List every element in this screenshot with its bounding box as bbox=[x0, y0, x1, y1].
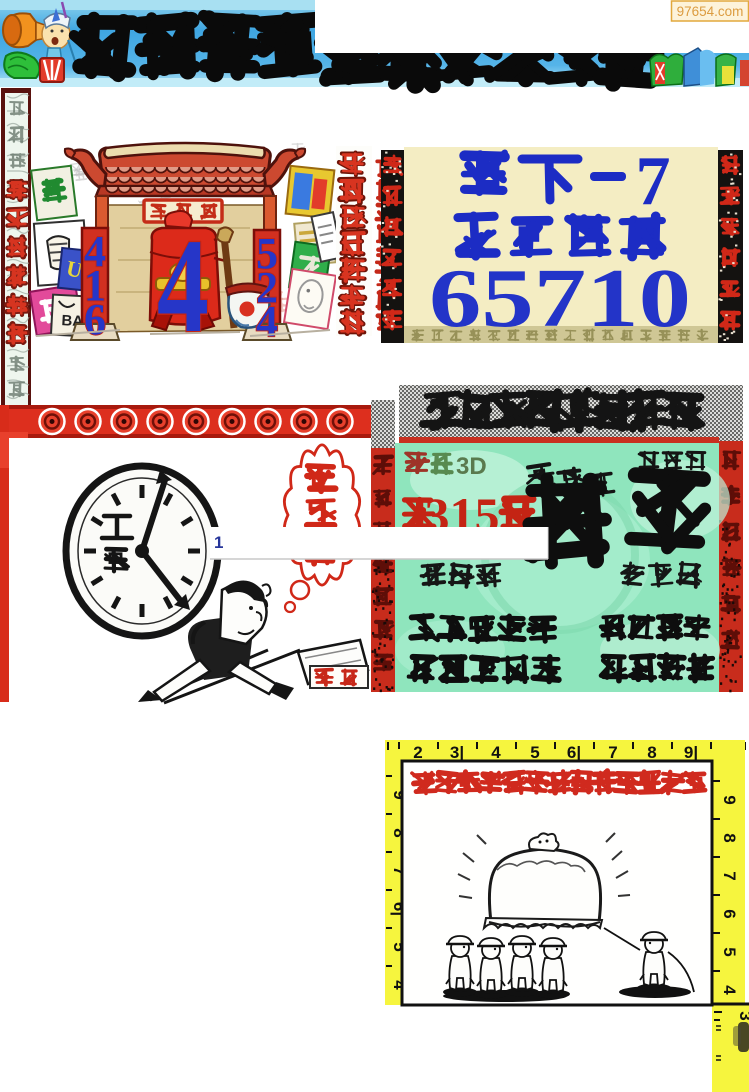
svg-text:6: 6 bbox=[720, 909, 739, 918]
svg-text:8: 8 bbox=[647, 743, 656, 762]
svg-text:4: 4 bbox=[157, 212, 209, 361]
svg-text:8: 8 bbox=[720, 833, 739, 842]
svg-text:9|: 9| bbox=[684, 743, 698, 762]
svg-text:6: 6 bbox=[84, 295, 106, 344]
svg-text:7: 7 bbox=[636, 143, 671, 220]
svg-text:3: 3 bbox=[736, 1011, 749, 1020]
svg-text:2: 2 bbox=[413, 743, 422, 762]
svg-text:4: 4 bbox=[256, 297, 278, 346]
svg-text:7: 7 bbox=[608, 743, 617, 762]
svg-text:4: 4 bbox=[720, 985, 739, 995]
svg-text:7: 7 bbox=[720, 871, 739, 880]
svg-text:9: 9 bbox=[720, 795, 739, 804]
svg-text:4: 4 bbox=[491, 743, 501, 762]
svg-text:65710: 65710 bbox=[429, 252, 691, 345]
svg-text:5: 5 bbox=[720, 947, 739, 956]
svg-text:5: 5 bbox=[530, 743, 539, 762]
svg-text:6|: 6| bbox=[567, 743, 581, 762]
svg-text:3|: 3| bbox=[450, 743, 464, 762]
svg-text:1: 1 bbox=[214, 533, 223, 552]
svg-text:97654.com: 97654.com bbox=[677, 4, 744, 19]
svg-text:3D: 3D bbox=[456, 453, 487, 480]
